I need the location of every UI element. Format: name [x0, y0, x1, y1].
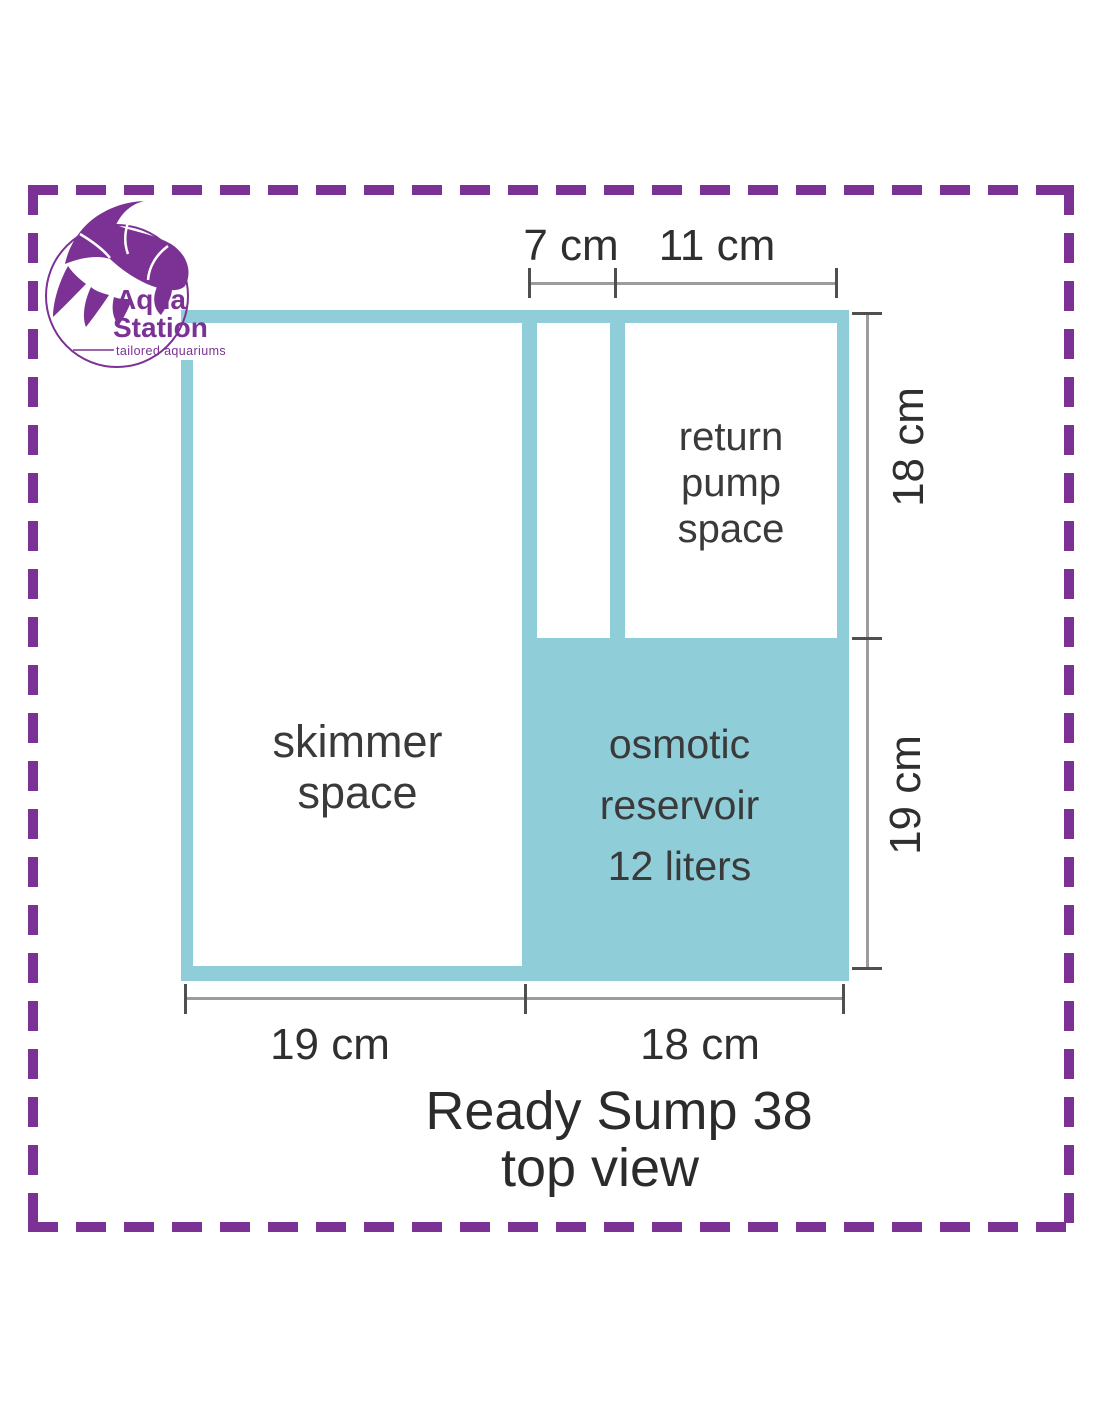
inlet-compartment [537, 323, 610, 638]
caption-subtitle: top view [501, 1137, 699, 1199]
logo-brand-line1: Aqua [116, 286, 186, 314]
return-pump-space-label: return pump space [625, 414, 837, 552]
dimension-label-right-lower: 19 cm [881, 735, 931, 855]
dashed-border-top [28, 185, 1074, 195]
dimension-line-right [866, 313, 869, 970]
skimmer-label-line1: skimmer [193, 716, 522, 767]
logo-brand-line2: Station [113, 314, 208, 342]
dimension-tick [835, 268, 838, 298]
dimension-line-top [529, 282, 837, 285]
dimension-label-top-inner: 7 cm [523, 221, 618, 271]
product-diagram-card: skimmer space return pump space osmotic … [0, 0, 1100, 1422]
dimension-tick [614, 268, 617, 298]
osmotic-label-line2: reservoir [522, 775, 837, 836]
osmotic-label-line3: 12 liters [522, 836, 837, 897]
dimension-label-right-upper: 18 cm [884, 387, 934, 507]
logo-tagline: tailored aquariums [116, 344, 226, 358]
dimension-tick [528, 268, 531, 298]
return-label-line1: return [625, 414, 837, 460]
dimension-tick [852, 637, 882, 640]
dimension-tick [852, 967, 882, 970]
caption-title: Ready Sump 38 [425, 1080, 812, 1142]
dimension-line-bottom [185, 997, 845, 1000]
osmotic-label-line1: osmotic [522, 714, 837, 775]
skimmer-compartment [193, 323, 522, 966]
skimmer-label-line2: space [193, 767, 522, 818]
dimension-label-bottom-left: 19 cm [270, 1020, 390, 1070]
skimmer-space-label: skimmer space [193, 716, 522, 818]
dashed-border-left [28, 185, 38, 1232]
dimension-tick [852, 312, 882, 315]
dimension-label-top-outer: 11 cm [659, 221, 776, 271]
dimension-tick [524, 984, 527, 1014]
dashed-border-bottom [28, 1222, 1074, 1232]
dimension-tick [184, 984, 187, 1014]
return-label-line2: pump [625, 460, 837, 506]
dimension-tick [842, 984, 845, 1014]
return-label-line3: space [625, 506, 837, 552]
dashed-border-right [1064, 185, 1074, 1232]
dimension-label-bottom-right: 18 cm [640, 1020, 760, 1070]
osmotic-reservoir-label: osmotic reservoir 12 liters [522, 714, 837, 897]
